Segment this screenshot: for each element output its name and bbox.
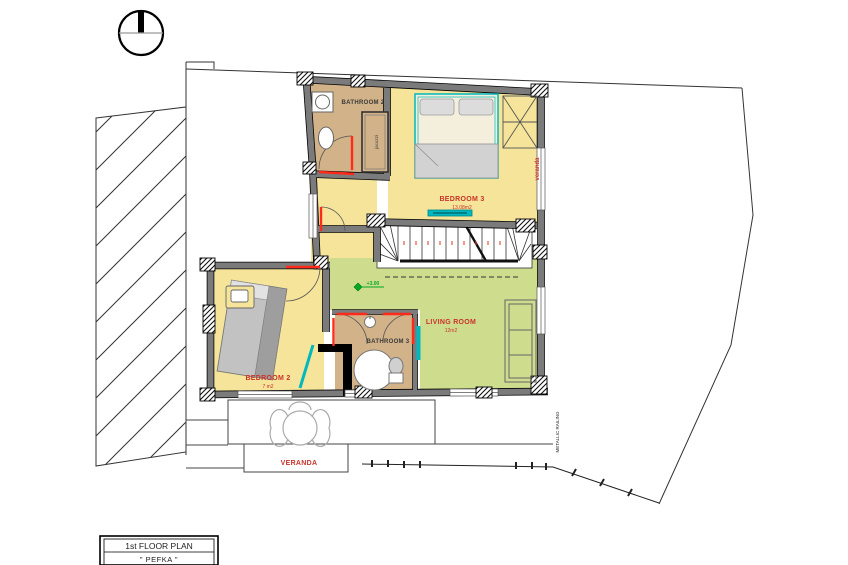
pillow (459, 99, 493, 115)
floor-plan-canvas: +3.00 BATHROOM 2 BEDROOM 3 13.08m2 BEDRO… (0, 0, 848, 565)
veranda-side-label: veranda (535, 157, 541, 181)
window-hall-left (309, 194, 317, 238)
title-block: 1st FLOOR PLAN " PEFKA " (100, 536, 218, 565)
title-line2: " PEFKA " (140, 555, 178, 564)
level-label: +3.00 (367, 281, 380, 287)
window-living-right (537, 287, 545, 334)
bedroom2-label: BEDROOM 2 (245, 375, 290, 382)
bedroom3-area: 13.08m2 (452, 205, 472, 211)
veranda-outline (186, 400, 553, 472)
pillow (420, 99, 454, 115)
desk (226, 286, 254, 308)
bathroom3-label: BATHROOM 3 (367, 339, 410, 345)
railing-note-label: METALLIC RAILING (555, 411, 560, 452)
living-room-label: LIVING ROOM (426, 319, 476, 326)
jacuzzi-label: jacuzzi (374, 135, 379, 150)
blanket (415, 144, 498, 178)
north-arrow-icon (119, 11, 163, 55)
window-bedroom2-bottom (238, 391, 292, 398)
toilet (389, 358, 403, 375)
shower (354, 350, 394, 390)
neighbour-building-hatch (96, 107, 186, 466)
veranda-label: VERANDA (281, 460, 318, 467)
bedroom2-area: 7 m2 (262, 384, 273, 390)
veranda-railing (362, 460, 659, 503)
bathroom2-label: BATHROOM 2 (342, 100, 385, 106)
floor-plan-drawing: +3.00 BATHROOM 2 BEDROOM 3 13.08m2 BEDRO… (0, 0, 848, 565)
bedroom3-label: BEDROOM 3 (439, 196, 484, 203)
title-line1: 1st FLOOR PLAN (125, 541, 193, 551)
living-room-area: 12m2 (445, 328, 458, 334)
